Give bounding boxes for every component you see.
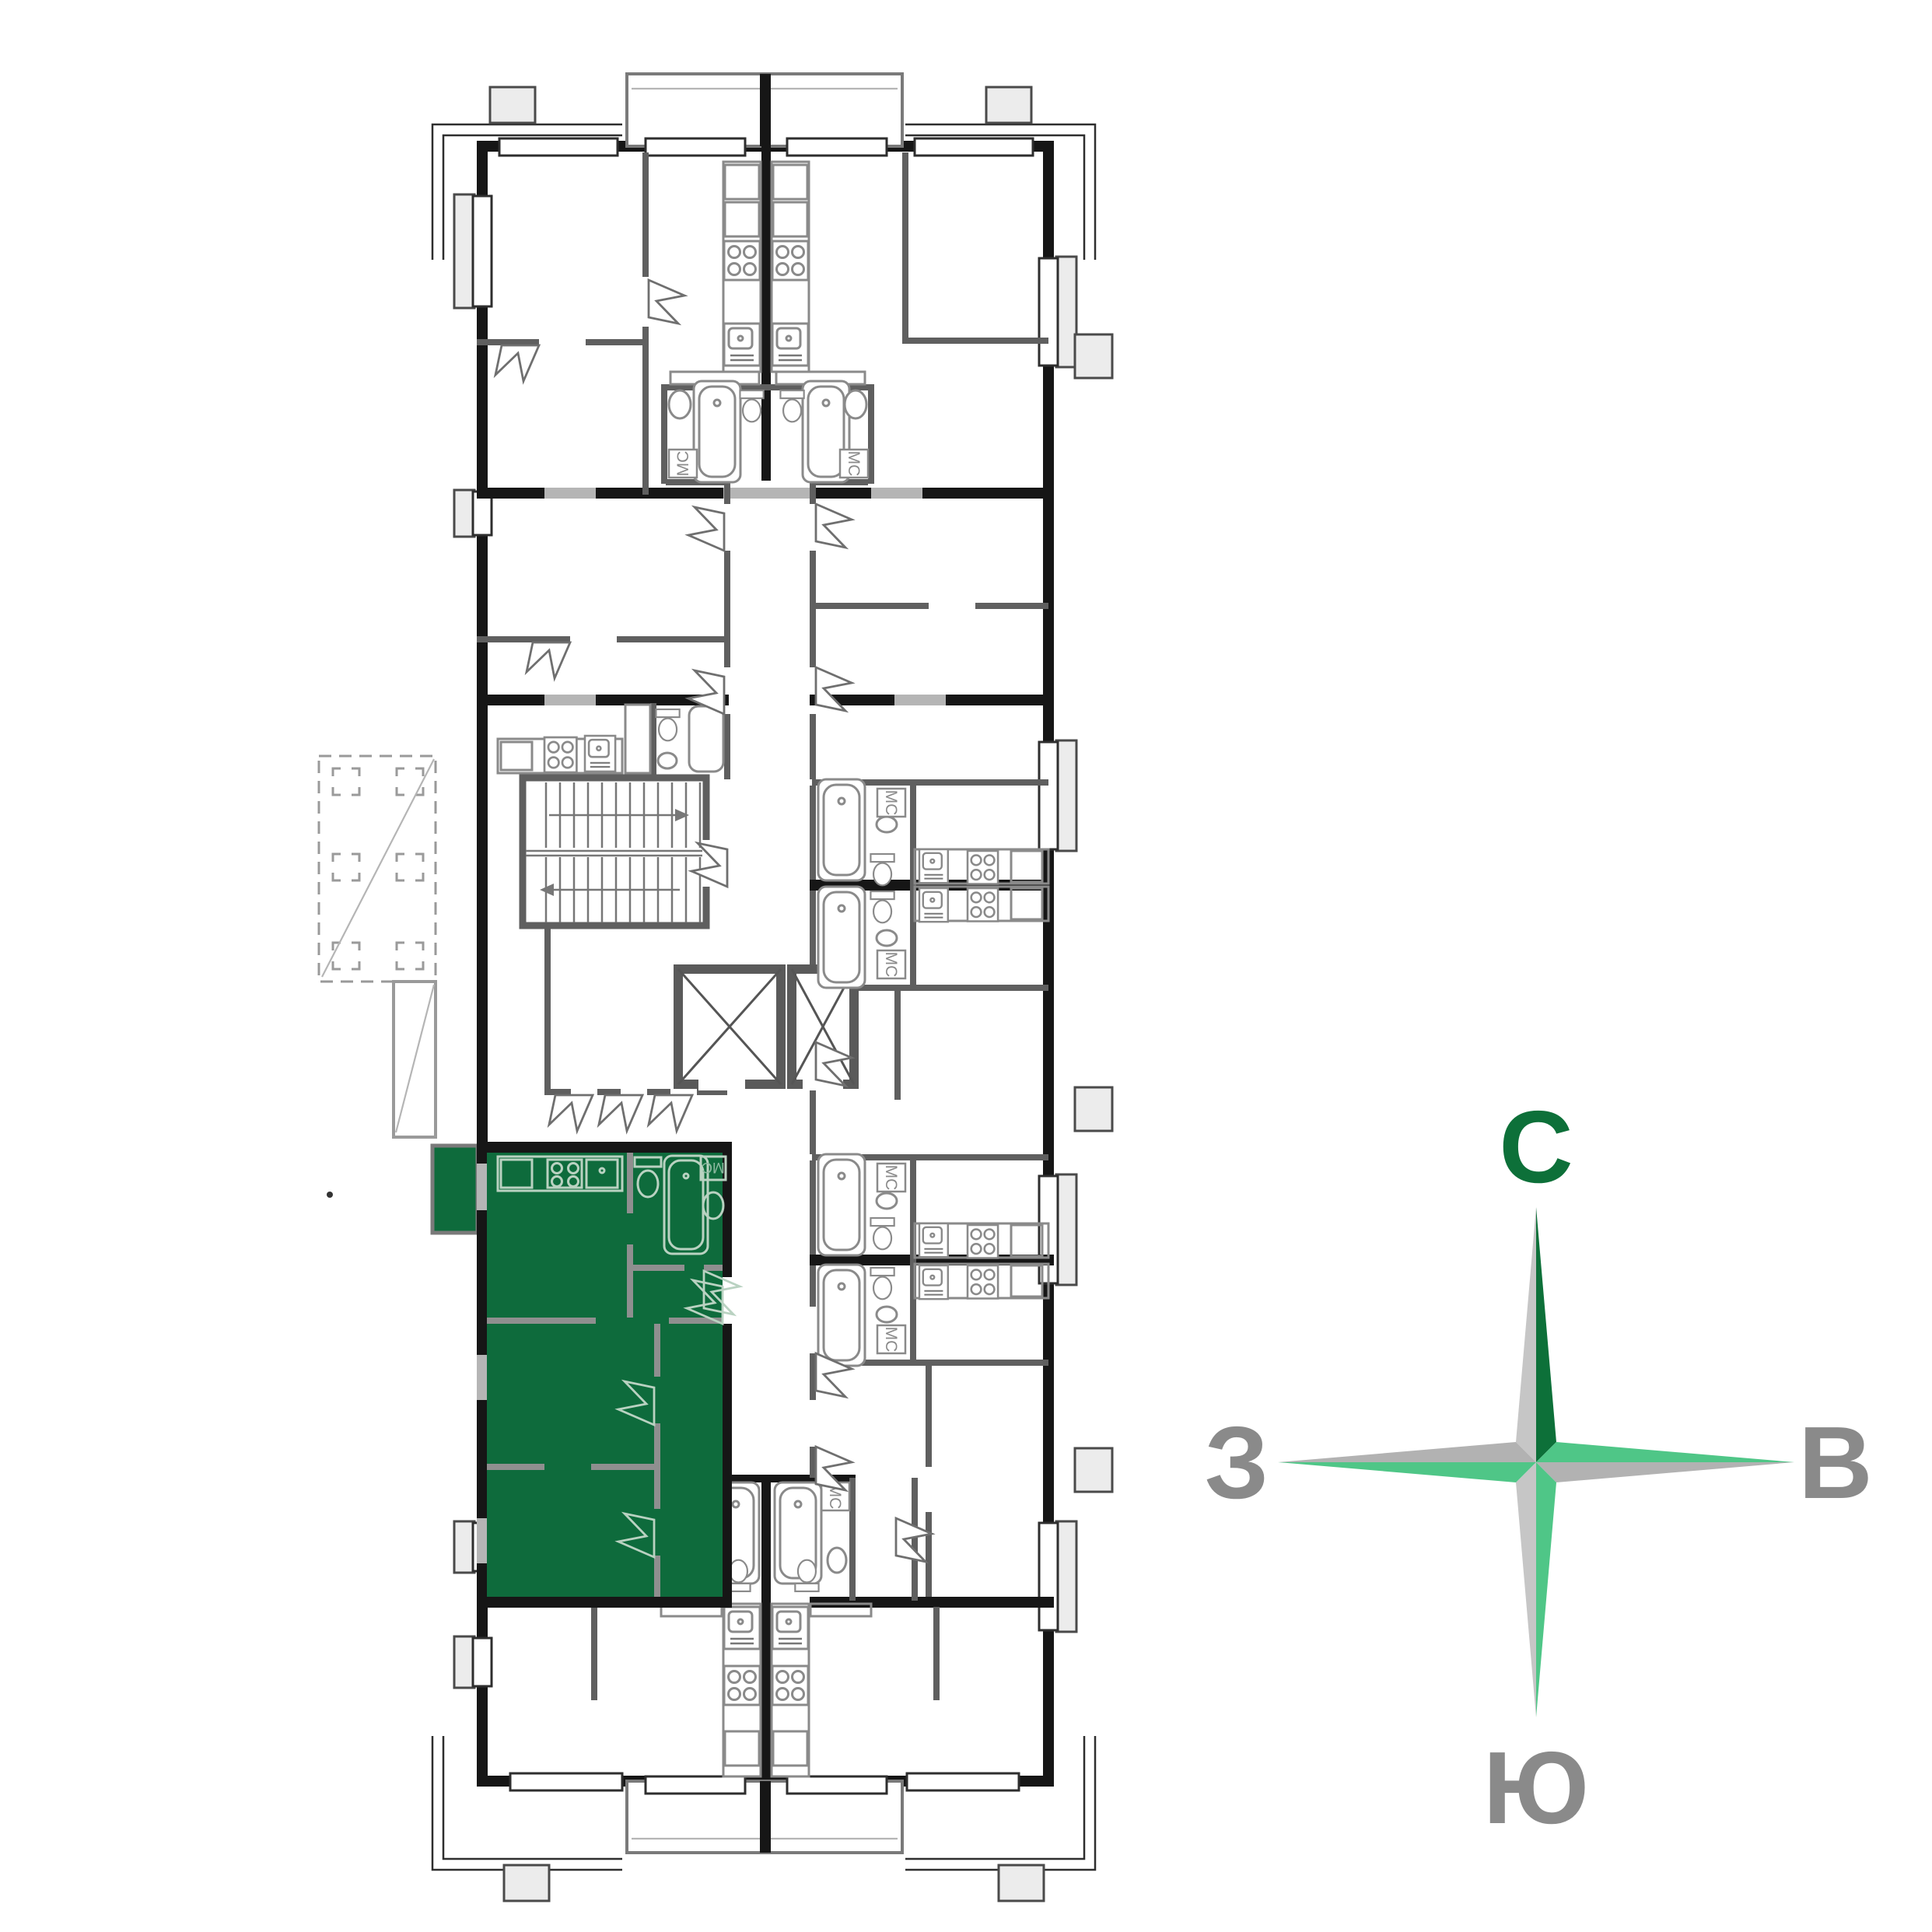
kitchen-sink-icon [724,1607,760,1649]
compass-south-arm [1516,1462,1536,1717]
kitchen-sink-icon [724,324,760,366]
compass-east-label: В [1798,1405,1872,1520]
svg-text:МС: МС [674,451,692,477]
stove-icon [772,241,808,280]
kitchen-sink-icon [772,324,808,366]
toilet-icon [656,709,679,740]
compass-north-label: С [1499,1090,1573,1204]
compass-west-arm [1278,1442,1536,1462]
bathtub-icon [689,706,723,772]
stove-icon [724,241,760,280]
stove-icon [724,1666,760,1705]
washing-machine-label: МС [877,950,905,978]
highlighted-apartment[interactable]: МС [432,1142,740,1608]
compass-north-arm [1536,1207,1556,1462]
toilet-icon [870,1268,894,1299]
washbasin-icon [877,1307,897,1322]
compass-west-arm [1278,1462,1536,1482]
toilet-icon [795,1560,818,1591]
toilet-icon [870,854,894,885]
washing-machine-label: МС [840,450,868,478]
washbasin-icon [669,390,691,418]
stove-icon [544,737,576,772]
bathtub-icon [818,1265,865,1366]
washbasin-icon [877,930,897,946]
compass-south-label: Ю [1483,1731,1589,1845]
svg-text:МС: МС [882,790,900,816]
washbasin-icon [845,390,866,418]
stove-icon [772,1666,808,1705]
washbasin-icon [658,753,677,768]
reference-dot [327,1192,333,1198]
washing-machine-label: МС [877,789,905,817]
left-balcony-structures [319,756,436,1137]
apartment-area [487,1153,723,1597]
bathtub-icon [818,887,865,988]
bathtub-icon [818,779,865,880]
apartment-balcony [432,1146,478,1233]
toilet-icon [740,390,763,422]
svg-text:МС: МС [882,1165,900,1191]
svg-text:МС: МС [882,1327,900,1353]
svg-text:МС: МС [702,1159,725,1175]
floorplan-image: МС МС [0,0,1932,1932]
building-plan: МС МС [327,74,1112,1901]
washbasin-icon [828,1548,846,1573]
kitchen-sink-icon [585,736,615,772]
washbasin-icon [877,1193,897,1209]
washing-machine-label: МС [877,1164,905,1192]
compass-east-arm [1536,1462,1794,1482]
compass-south-arm [1536,1462,1556,1717]
compass-rose: С В Ю З [1205,1090,1873,1845]
svg-text:МС: МС [845,451,863,477]
washbasin-icon [877,817,897,832]
toilet-icon [780,390,803,422]
stairwell [523,778,713,926]
kitchen-sink-icon [772,1607,808,1649]
compass-north-arm [1516,1207,1536,1462]
washing-machine-label: МС [877,1325,905,1353]
toilet-icon [870,1218,894,1249]
compass-east-arm [1536,1442,1794,1462]
top-balcony [627,74,902,146]
bathtub-icon [694,381,740,482]
bathtub-icon [818,1154,865,1255]
compass-west-label: З [1205,1405,1269,1520]
washing-machine-label: МС [669,450,697,478]
toilet-icon [870,891,894,922]
svg-text:МС: МС [882,952,900,978]
